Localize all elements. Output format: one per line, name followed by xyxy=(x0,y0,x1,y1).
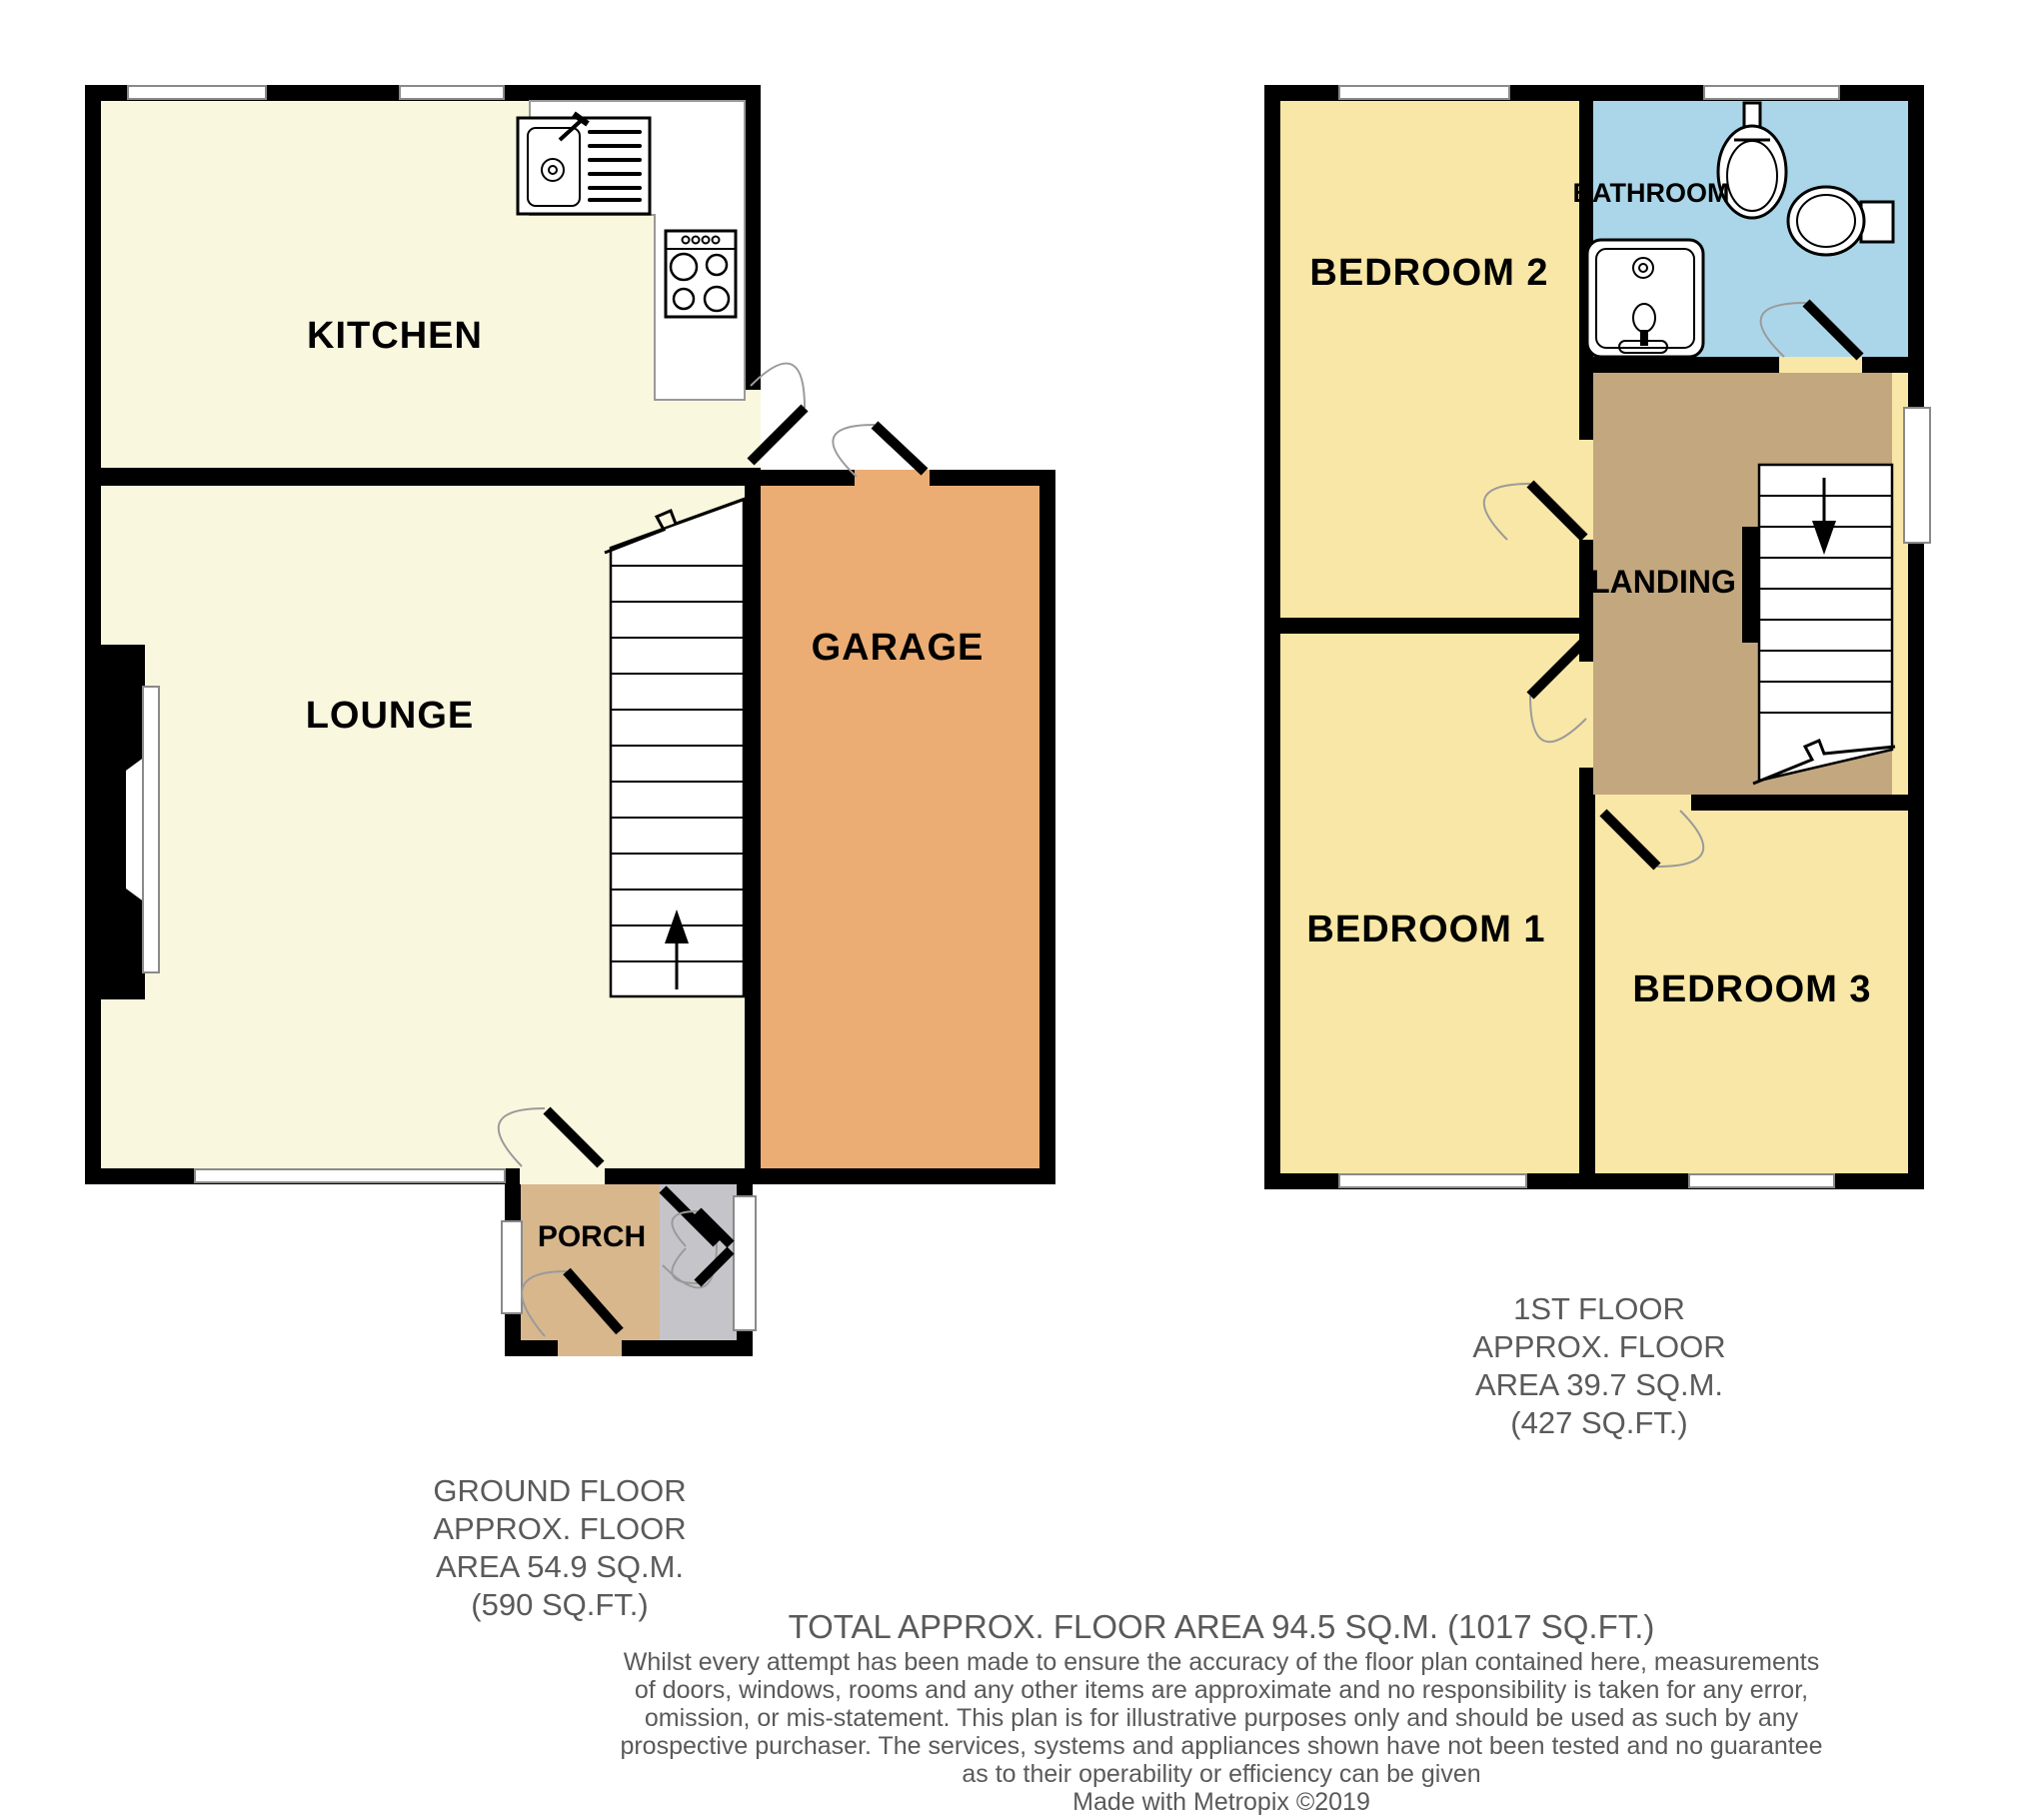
wall xyxy=(1579,357,1779,373)
porch-left-window xyxy=(502,1221,522,1313)
wall xyxy=(622,1340,753,1356)
wall xyxy=(85,468,745,486)
ground-floor-area-line: AREA 54.9 SQ.M. xyxy=(436,1549,684,1584)
garage-door xyxy=(833,425,925,477)
lounge-window xyxy=(195,1169,505,1182)
first-floor-area-line: APPROX. FLOOR xyxy=(1472,1329,1725,1364)
first-floor-area-line: (427 SQ.FT.) xyxy=(1510,1405,1687,1440)
garage-label: GARAGE xyxy=(812,627,985,669)
bedroom2-window xyxy=(1339,86,1509,99)
bedroom1-label: BEDROOM 1 xyxy=(1306,909,1545,950)
wall xyxy=(1691,795,1909,811)
wall xyxy=(745,1168,1055,1184)
kitchen-sink-window xyxy=(400,86,504,99)
cooker-icon xyxy=(666,231,736,317)
disclaimer-line: as to their operability or efficiency ca… xyxy=(962,1760,1480,1788)
bathroom-window xyxy=(1704,86,1839,99)
floorplan-svg: KITCHEN LOUNGE GARAGE PORCH xyxy=(0,0,2024,1820)
bedroom2-label: BEDROOM 2 xyxy=(1309,252,1548,294)
ground-floor-area-line: GROUND FLOOR xyxy=(433,1473,686,1508)
disclaimer-line: omission, or mis-statement. This plan is… xyxy=(645,1704,1799,1732)
wall xyxy=(1039,470,1055,1184)
bathroom-label: BATHROOM xyxy=(1573,178,1730,208)
wall xyxy=(930,470,1055,486)
bay-window-pane xyxy=(143,687,159,972)
metropix-credit: Made with Metropix ©2019 xyxy=(1072,1788,1370,1816)
wall xyxy=(1862,357,1908,373)
wall xyxy=(1579,795,1595,1189)
bedroom3-window xyxy=(1689,1174,1834,1187)
summary-text: GROUND FLOOR APPROX. FLOOR AREA 54.9 SQ.… xyxy=(433,1291,1822,1816)
wall xyxy=(605,1168,761,1184)
wall xyxy=(1264,618,1593,634)
bay-window xyxy=(85,645,159,999)
wall xyxy=(505,1340,558,1356)
bath-icon xyxy=(1587,240,1703,357)
stair-window xyxy=(1904,408,1930,543)
wall xyxy=(745,468,761,1184)
wall xyxy=(85,85,101,1184)
wall xyxy=(745,85,761,390)
bedroom1-window xyxy=(1339,1174,1526,1187)
wall xyxy=(1264,85,1280,1189)
wall xyxy=(1742,527,1759,643)
disclaimer-line: prospective purchaser. The services, sys… xyxy=(620,1732,1822,1760)
bedroom3-label: BEDROOM 3 xyxy=(1632,968,1871,1010)
first-floor-plan: BEDROOM 2 BATHROOM LANDING BEDROOM 1 BED… xyxy=(1264,85,1930,1189)
kitchen-window xyxy=(128,86,266,99)
porch-floor xyxy=(505,1184,660,1340)
wall xyxy=(761,470,855,486)
disclaimer-line: Whilst every attempt has been made to en… xyxy=(624,1648,1819,1676)
lounge-label: LOUNGE xyxy=(306,695,475,737)
porch-door-gap-floor xyxy=(558,1340,622,1356)
porch-right-window xyxy=(734,1196,756,1330)
ground-floor-plan: KITCHEN LOUNGE GARAGE PORCH xyxy=(85,85,1055,1356)
porch-label: PORCH xyxy=(538,1220,646,1253)
garage-floor xyxy=(745,470,1055,1184)
ground-floor-area-line: (590 SQ.FT.) xyxy=(471,1587,648,1622)
wall xyxy=(1908,85,1924,1189)
wall xyxy=(1579,373,1593,440)
first-floor-area-line: 1ST FLOOR xyxy=(1513,1291,1685,1326)
first-floor-area-line: AREA 39.7 SQ.M. xyxy=(1475,1367,1723,1402)
sink-icon xyxy=(518,114,650,214)
landing-label: LANDING xyxy=(1590,564,1736,600)
floorplan-page: KITCHEN LOUNGE GARAGE PORCH xyxy=(0,0,2024,1820)
kitchen-label: KITCHEN xyxy=(307,315,483,357)
ground-floor-area-line: APPROX. FLOOR xyxy=(433,1511,686,1546)
total-area-line: TOTAL APPROX. FLOOR AREA 94.5 SQ.M. (101… xyxy=(789,1608,1655,1645)
disclaimer-line: of doors, windows, rooms and any other i… xyxy=(635,1676,1808,1704)
